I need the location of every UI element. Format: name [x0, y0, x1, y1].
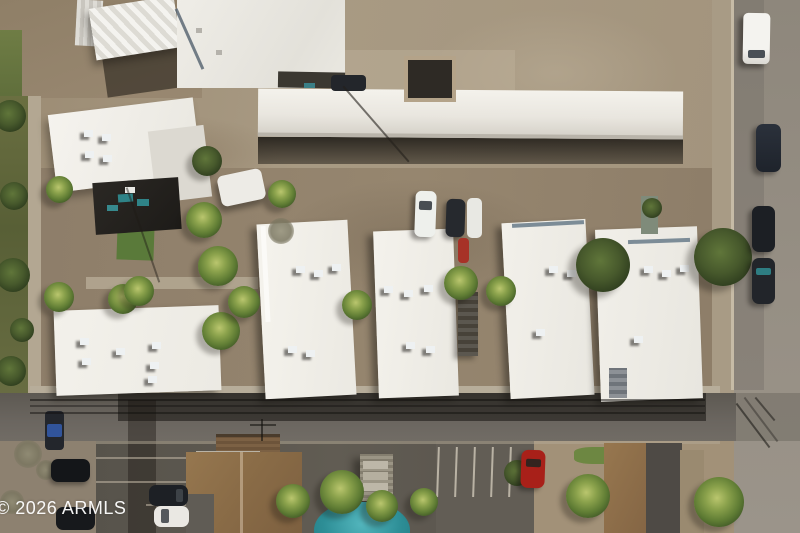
power-line: [30, 412, 705, 414]
pole-crossarm: [250, 424, 276, 426]
power-line: [30, 399, 705, 401]
pole-shadow: [126, 187, 160, 282]
wire-shadow-diagonal: [342, 86, 409, 163]
pipe-diagonal: [175, 8, 205, 70]
utility-pole: [261, 419, 263, 441]
wires-layer: [0, 0, 800, 533]
power-line: [30, 405, 705, 407]
aerial-photo: © 2026 ARMLS: [0, 0, 800, 533]
watermark: © 2026 ARMLS: [0, 498, 126, 519]
